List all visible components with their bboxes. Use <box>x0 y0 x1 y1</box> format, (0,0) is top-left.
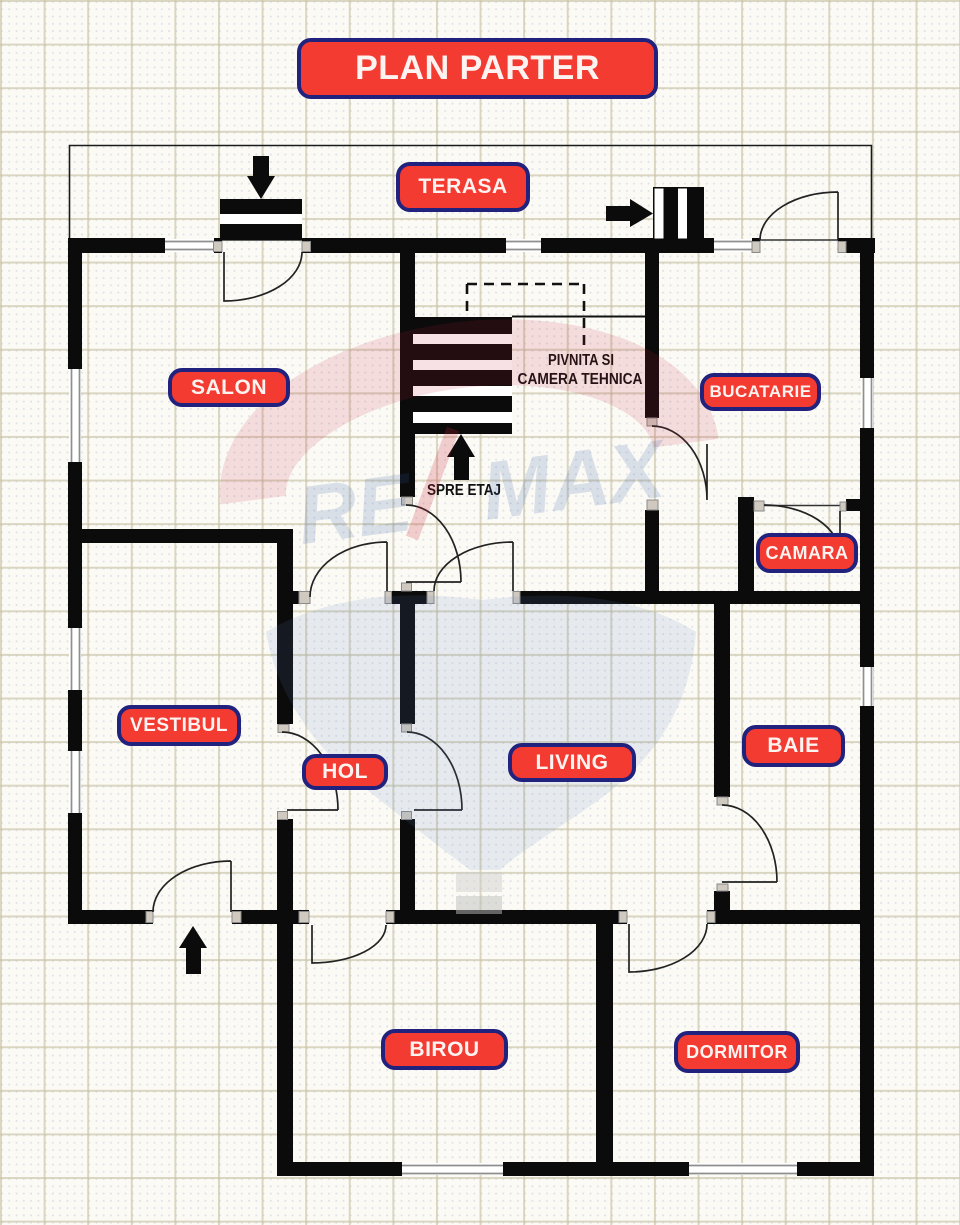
svg-text:MAX: MAX <box>477 423 674 538</box>
svg-text:RE: RE <box>292 457 419 562</box>
